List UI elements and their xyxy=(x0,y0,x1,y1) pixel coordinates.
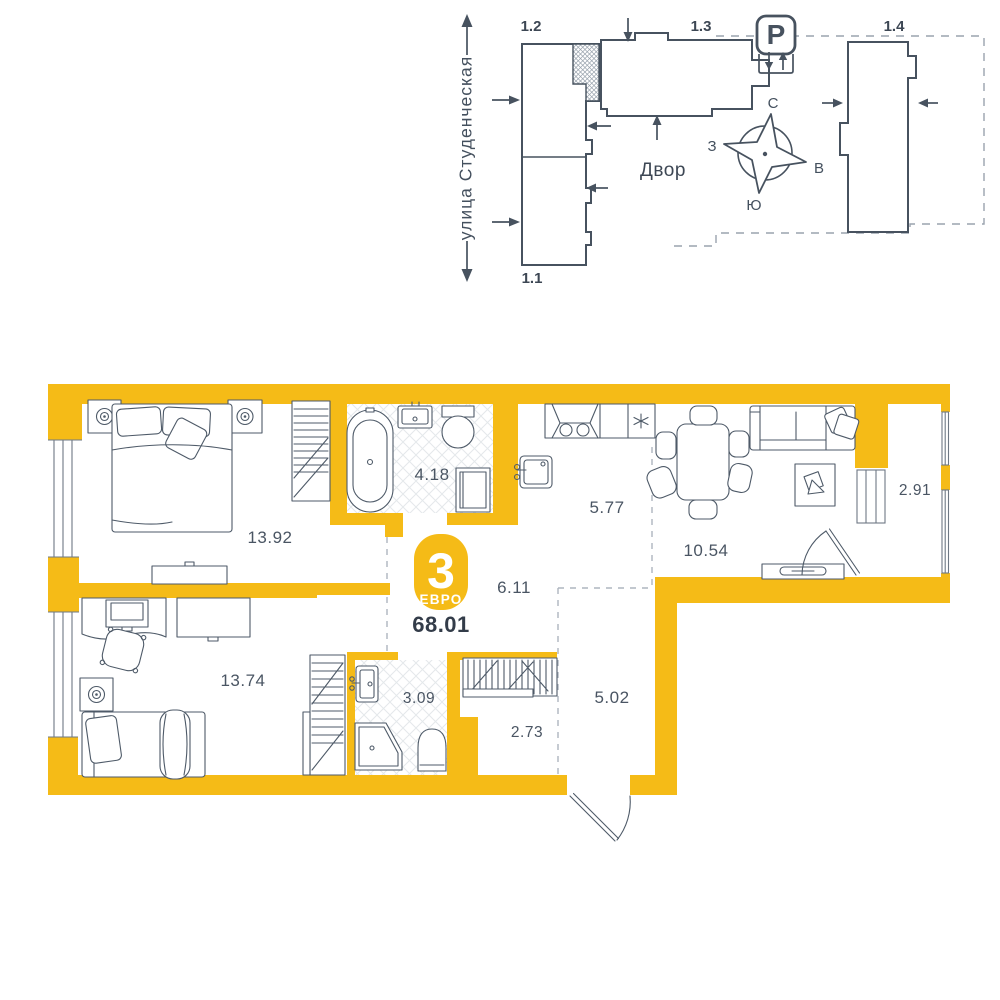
coffee-table-plant-icon xyxy=(795,464,835,506)
window-left-upper xyxy=(48,440,82,557)
area-label-bedroom-2: 13.74 xyxy=(220,671,265,690)
window-left-lower xyxy=(48,612,79,737)
ceiling-speaker-icon xyxy=(228,400,262,433)
sink-icon xyxy=(398,402,432,428)
entrance-door-icon xyxy=(570,794,630,842)
site-plan: улица Студенческая 1.2 1.3 1.1 1.4 Двор xyxy=(456,14,984,287)
chair-icon xyxy=(656,432,676,459)
kitchen-counter-icon xyxy=(545,404,655,438)
area-label-living-dining: 10.54 xyxy=(683,541,728,560)
clothes-rail-icon xyxy=(463,658,557,697)
area-label-bathroom-1: 4.18 xyxy=(414,465,449,484)
compass-south: Ю xyxy=(746,197,761,214)
apartment-plan: 13.92 xyxy=(48,384,950,841)
bathtub-icon xyxy=(347,408,393,512)
corner-sofa-icon xyxy=(750,406,860,450)
area-label-balcony: 2.91 xyxy=(899,482,931,499)
chair-icon xyxy=(729,431,749,457)
living-dining: 10.54 xyxy=(645,406,860,579)
street-arrow-down-icon xyxy=(462,241,473,282)
area-label-kitchen: 5.77 xyxy=(589,498,624,517)
area-label-bedroom-1: 13.92 xyxy=(247,528,292,547)
chair-icon xyxy=(689,500,717,519)
parking-letter: P xyxy=(767,19,786,50)
wardrobe-shelves-icon xyxy=(292,401,330,501)
building-label-1-2: 1.2 xyxy=(521,18,542,35)
bedroom-2: 13.74 xyxy=(80,598,345,779)
building-1-3 xyxy=(601,33,769,116)
kitchen-sink-icon xyxy=(515,456,553,488)
badge-rooms-count: 3 xyxy=(427,543,455,599)
street-label: улица Студенческая xyxy=(456,56,476,240)
building-1-1-1-2 xyxy=(522,44,599,265)
area-label-wardrobe: 2.73 xyxy=(511,724,543,741)
toilet-icon xyxy=(442,406,474,448)
building-label-1-3: 1.3 xyxy=(691,18,712,35)
dresser-icon xyxy=(152,562,227,584)
compass-west: З xyxy=(707,138,716,155)
single-bed-icon xyxy=(82,710,205,779)
ceiling-speaker-icon xyxy=(80,678,113,711)
window-balcony-right-1 xyxy=(942,412,949,465)
dining-table-icon xyxy=(677,424,729,500)
compass-north: С xyxy=(768,95,779,112)
compass-east: В xyxy=(814,160,824,177)
total-area-label: 68.01 xyxy=(412,612,470,637)
street-label-group: улица Студенческая xyxy=(456,14,476,282)
building-1-4 xyxy=(840,42,916,232)
chair-icon xyxy=(645,464,679,500)
hallway: 3 ЕВРО 68.01 6.11 xyxy=(412,534,531,637)
window-balcony-right-2 xyxy=(942,490,949,573)
compass: С Ю З В xyxy=(707,95,824,214)
bedroom-1: 13.92 xyxy=(88,400,330,584)
kitchen: 5.77 xyxy=(515,404,656,517)
plan-drawing: улица Студенческая 1.2 1.3 1.1 1.4 Двор xyxy=(0,0,1000,1000)
toilet-icon xyxy=(418,729,446,771)
area-label-hallway: 6.11 xyxy=(497,578,531,597)
chair-icon xyxy=(726,462,753,494)
street-arrow-up-icon xyxy=(462,14,473,55)
entry-hall: 5.02 xyxy=(570,688,630,841)
wardrobe-shelves-icon xyxy=(303,655,345,775)
chair-icon xyxy=(690,406,717,425)
building-label-1-1: 1.1 xyxy=(522,270,543,287)
dresser-icon xyxy=(177,598,250,641)
washing-machine-icon xyxy=(456,468,490,512)
area-label-entry-hall: 5.02 xyxy=(594,688,629,707)
courtyard-label: Двор xyxy=(640,160,686,181)
window-living-balcony xyxy=(857,470,885,523)
badge-layout-type: ЕВРО xyxy=(420,592,463,607)
area-label-bathroom-2: 3.09 xyxy=(403,690,435,707)
building-label-1-4: 1.4 xyxy=(884,18,906,35)
double-bed-icon xyxy=(112,404,232,532)
floor-plan-page: улица Студенческая 1.2 1.3 1.1 1.4 Двор xyxy=(0,0,1000,1000)
